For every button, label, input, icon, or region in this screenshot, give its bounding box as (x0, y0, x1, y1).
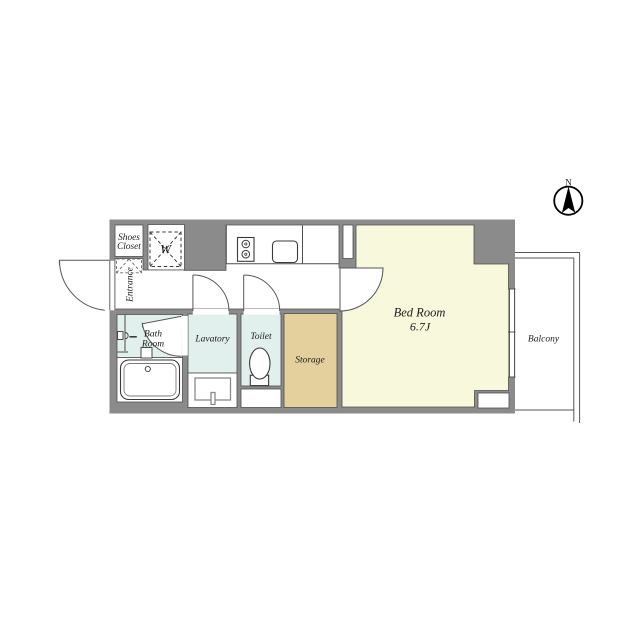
svg-text:Closet: Closet (117, 242, 141, 252)
svg-text:Room: Room (141, 340, 164, 350)
svg-text:6.7J: 6.7J (410, 320, 431, 334)
svg-text:Bath: Bath (144, 330, 162, 340)
svg-text:W: W (160, 242, 172, 257)
svg-text:Toilet: Toilet (250, 332, 272, 342)
svg-text:N: N (565, 178, 572, 188)
svg-text:Lavatory: Lavatory (194, 335, 230, 345)
svg-text:Bed Room: Bed Room (394, 306, 446, 320)
svg-text:Storage: Storage (295, 356, 325, 366)
svg-text:Entrance: Entrance (126, 267, 136, 303)
svg-text:Balcony: Balcony (528, 335, 560, 345)
